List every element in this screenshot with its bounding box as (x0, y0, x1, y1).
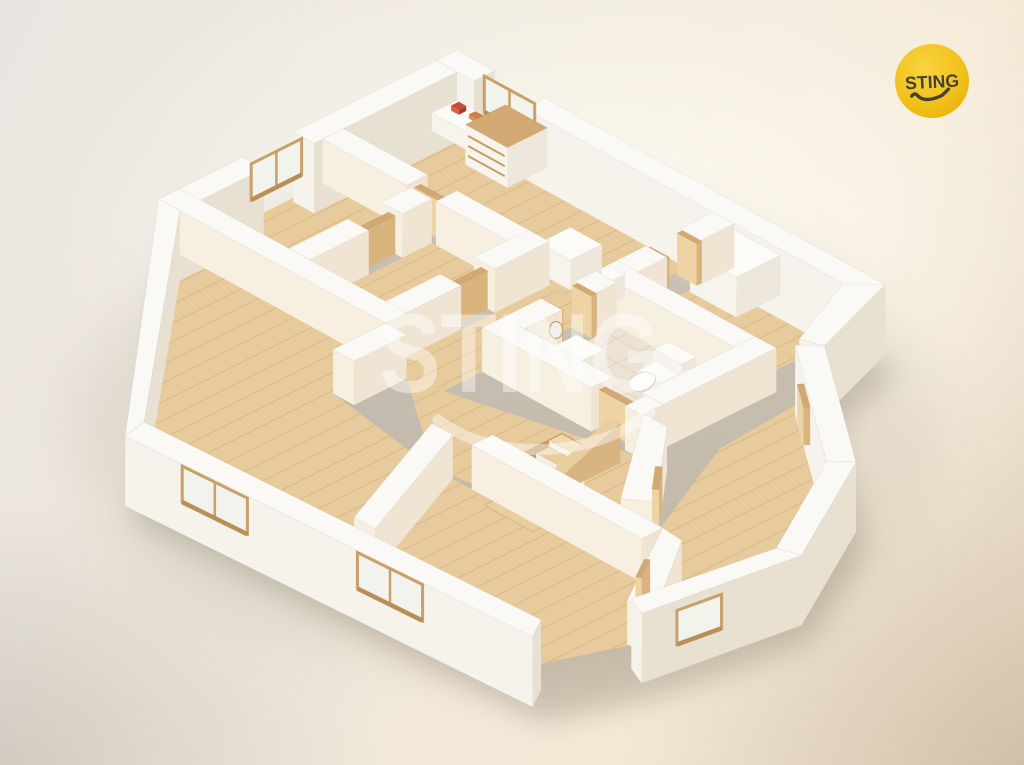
floorplan-3d-view: STING STING (0, 0, 1024, 765)
logo-text: STING (905, 71, 960, 94)
sting-logo: STING (895, 44, 969, 118)
watermark-text: STING (379, 291, 661, 416)
floorplan-image: STING STING (0, 0, 1024, 765)
